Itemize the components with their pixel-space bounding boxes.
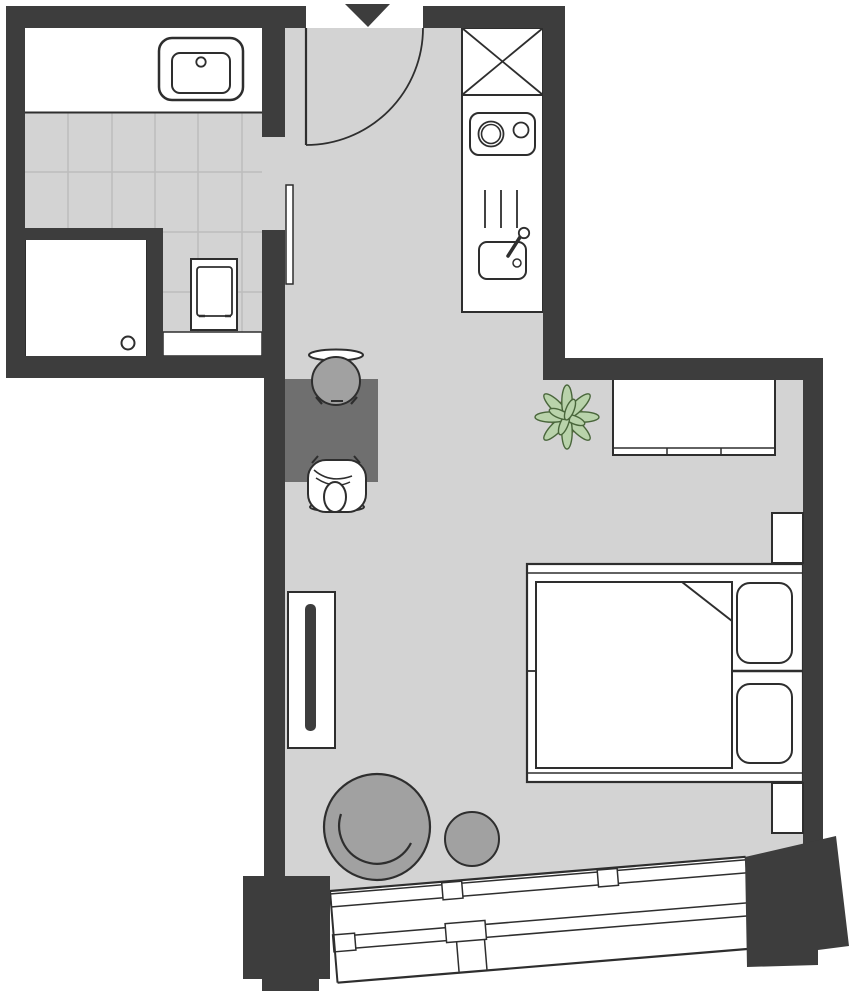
bathroom-door-opening-floor [262, 137, 285, 230]
desk-chair-seat [312, 357, 360, 405]
pillow-upper [737, 583, 792, 663]
mullion-outer-left [333, 933, 356, 952]
side-table [445, 812, 499, 866]
basin-faucet-icon [196, 57, 205, 66]
wall-top-left [6, 6, 306, 28]
wall-bathroom-bottom [6, 356, 285, 378]
wall-niche-upper [772, 513, 803, 563]
window-jamb-line-2 [484, 940, 486, 970]
cooktop [470, 113, 535, 155]
window-pillar-left-foot [262, 979, 319, 991]
pillow-lower [737, 684, 792, 763]
shower-partition-vertical [147, 228, 163, 360]
wall-niche-lower [772, 783, 803, 833]
entrance-direction-triangle [345, 4, 390, 27]
wall-left-exterior [6, 6, 25, 378]
bathroom-door-leaf [286, 185, 293, 284]
plant-leaves [535, 385, 599, 449]
floor-plan-svg [0, 0, 858, 1000]
sideboard [613, 379, 775, 455]
wall-kitchen-right [543, 6, 565, 358]
window-jamb-line-1 [457, 942, 459, 972]
mullion-outer-mid [445, 920, 486, 942]
double-bed [527, 564, 803, 782]
window-pillar-left [243, 876, 330, 979]
faucet-head-icon [519, 228, 529, 238]
faucet-base-icon [513, 259, 521, 267]
shower-drain-icon [122, 337, 135, 350]
wall-upper-right-horizontal [543, 358, 823, 380]
kitchen-unit [462, 28, 543, 312]
mullion-inner-1 [442, 881, 463, 900]
mattress [536, 582, 732, 768]
potted-plant [535, 385, 599, 449]
floor-plan-canvas [0, 0, 858, 1000]
mullion-inner-2 [597, 868, 618, 887]
wall-room-left [264, 378, 285, 876]
shower-partition-horizontal [6, 228, 147, 240]
person-head [324, 482, 346, 512]
toilet-shelf [163, 332, 262, 356]
wall-bath-hall-upper [262, 28, 285, 137]
wardrobe-sliding-door [305, 604, 316, 731]
glazing-strip-outer [334, 903, 751, 950]
window-pillar-right [745, 836, 849, 967]
toilet-bowl-inner [197, 267, 232, 316]
window-outer-edge [338, 949, 754, 983]
wall-bath-hall-lower [262, 230, 285, 378]
wall-right-exterior [803, 380, 823, 846]
